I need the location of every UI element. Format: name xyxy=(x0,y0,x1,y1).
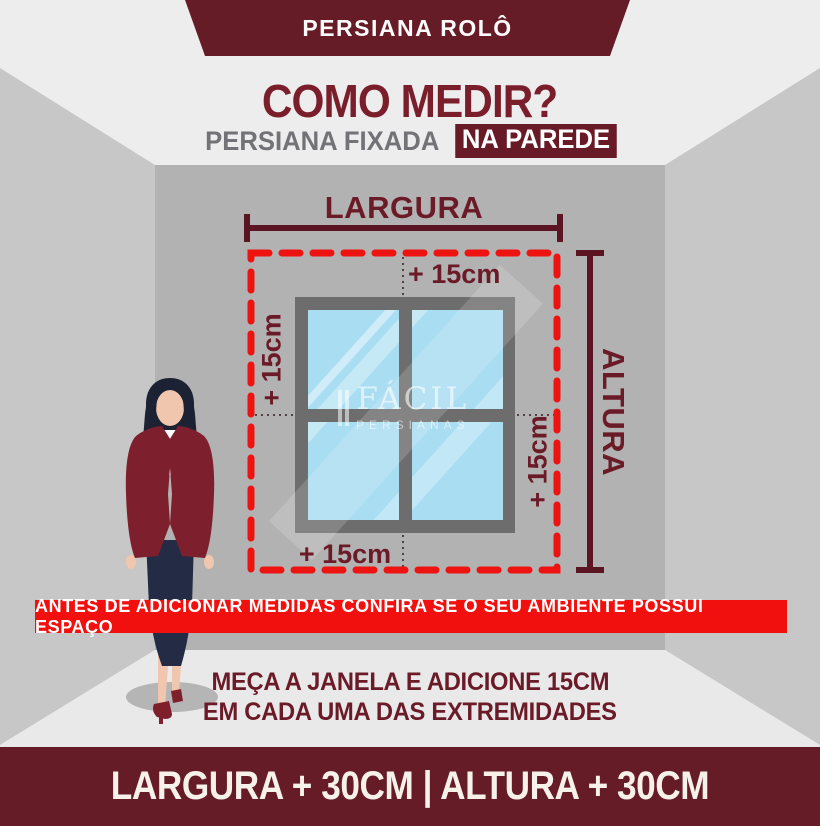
right-wall xyxy=(665,68,820,745)
product-banner: PERSIANA ROLÔ xyxy=(185,0,630,56)
footer-formula-bar: LARGURA + 30CM | ALTURA + 30CM xyxy=(0,747,820,826)
height-label: ALTURA xyxy=(595,337,631,487)
instruction-line-2: EM CADA UMA DAS EXTREMIDADES xyxy=(203,697,617,727)
infographic-canvas: FÁCIL PERSIANAS LARGURA ALTURA + 15cm + … xyxy=(0,0,820,826)
page-title: COMO MEDIR? xyxy=(0,78,820,124)
offset-top-label: + 15cm xyxy=(408,259,500,290)
watermark-brand-name: FÁCIL xyxy=(356,384,469,415)
warning-banner: ANTES DE ADICIONAR MEDIDAS CONFIRA SE O … xyxy=(35,600,787,633)
footer-formula-text: LARGURA + 30CM | ALTURA + 30CM xyxy=(111,764,709,809)
offset-right-label: + 15cm xyxy=(523,402,554,522)
width-label: LARGURA xyxy=(254,190,554,226)
offset-bottom-label: + 15cm xyxy=(285,539,405,570)
blazer-left-panel xyxy=(126,426,172,558)
subtitle-plain: PERSIANA FIXADA xyxy=(205,126,439,157)
brand-watermark: FÁCIL PERSIANAS xyxy=(338,384,470,432)
product-banner-title: PERSIANA ROLÔ xyxy=(302,15,512,42)
warning-banner-text: ANTES DE ADICIONAR MEDIDAS CONFIRA SE O … xyxy=(35,596,787,638)
subtitle-highlight: NA PAREDE xyxy=(456,124,618,158)
instruction-line-1: MEÇA A JANELA E ADICIONE 15CM xyxy=(211,667,609,697)
left-hand xyxy=(126,555,136,569)
page-subtitle: PERSIANA FIXADA NA PAREDE xyxy=(0,124,820,158)
watermark-brand-sub: PERSIANAS xyxy=(356,418,470,432)
blind-slats-logo-icon xyxy=(338,390,349,426)
face xyxy=(156,390,184,426)
blazer-right-panel xyxy=(168,426,214,558)
page-title-text: COMO MEDIR? xyxy=(262,78,558,124)
right-hand xyxy=(204,555,214,569)
instruction-block: MEÇA A JANELA E ADICIONE 15CM EM CADA UM… xyxy=(0,667,820,727)
offset-left-label: + 15cm xyxy=(257,300,288,420)
